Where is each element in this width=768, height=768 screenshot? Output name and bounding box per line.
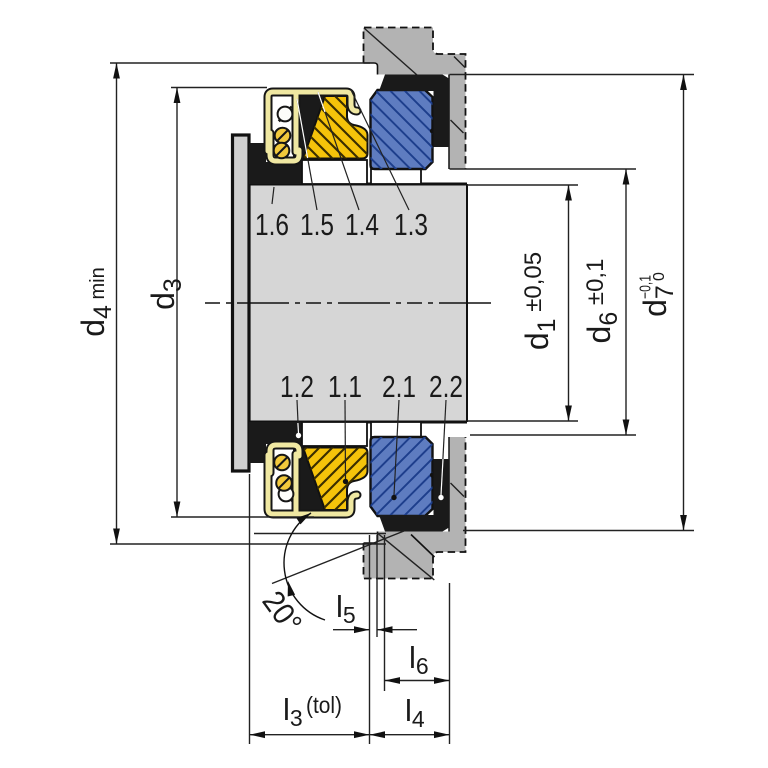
svg-text:1.2: 1.2 bbox=[280, 369, 314, 404]
svg-text:1.1: 1.1 bbox=[328, 369, 362, 404]
svg-text:2.1: 2.1 bbox=[382, 369, 416, 404]
svg-text:1.6: 1.6 bbox=[255, 207, 289, 242]
svg-text:2.2: 2.2 bbox=[429, 369, 463, 404]
svg-text:−0,1: −0,1 bbox=[638, 275, 655, 299]
svg-text:1.3: 1.3 bbox=[394, 207, 428, 242]
svg-text:1.4: 1.4 bbox=[345, 207, 379, 242]
svg-text:(tol): (tol) bbox=[306, 692, 342, 718]
svg-text:1.5: 1.5 bbox=[300, 207, 334, 242]
